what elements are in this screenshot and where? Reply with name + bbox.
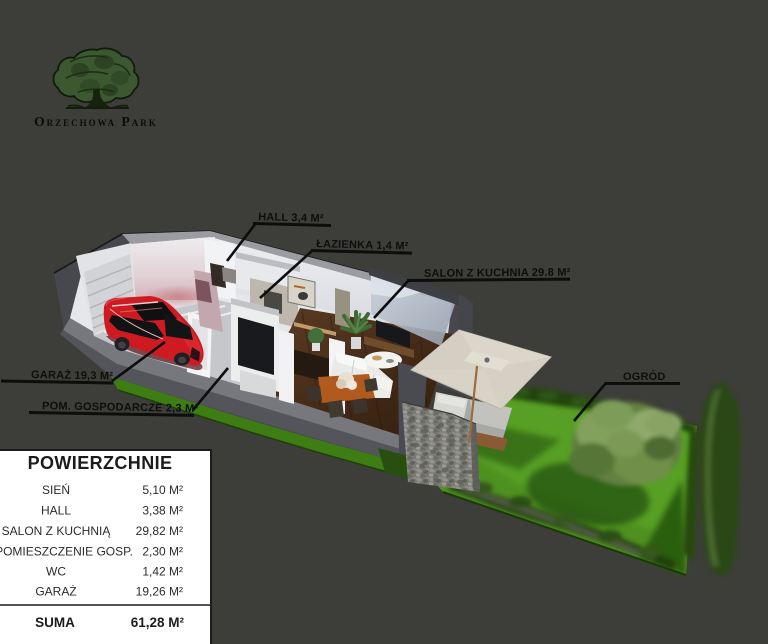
- svg-text:OGRÓD: OGRÓD: [623, 370, 666, 383]
- svg-text:19,26 M²: 19,26 M²: [136, 585, 183, 599]
- svg-text:Orzechowa Park: Orzechowa Park: [34, 114, 158, 129]
- svg-text:POMIESZCZENIE GOSP.: POMIESZCZENIE GOSP.: [0, 545, 133, 559]
- svg-text:SALON Z KUCHNIĄ: SALON Z KUCHNIĄ: [2, 524, 112, 538]
- svg-text:WC: WC: [46, 565, 66, 579]
- svg-text:2,30 M²: 2,30 M²: [142, 545, 183, 559]
- svg-text:SIEŃ: SIEŃ: [42, 482, 70, 497]
- svg-text:61,28 M²: 61,28 M²: [131, 615, 185, 630]
- svg-text:1,42 M²: 1,42 M²: [142, 565, 183, 579]
- svg-text:HALL: HALL: [41, 504, 71, 518]
- svg-text:SUMA: SUMA: [35, 615, 75, 630]
- svg-text:POWIERZCHNIE: POWIERZCHNIE: [28, 453, 173, 473]
- svg-text:GARAŻ: GARAŻ: [35, 585, 76, 599]
- svg-text:3,38 M²: 3,38 M²: [142, 504, 183, 518]
- svg-text:5,10 M²: 5,10 M²: [142, 483, 183, 497]
- svg-text:29,82 M²: 29,82 M²: [136, 524, 183, 538]
